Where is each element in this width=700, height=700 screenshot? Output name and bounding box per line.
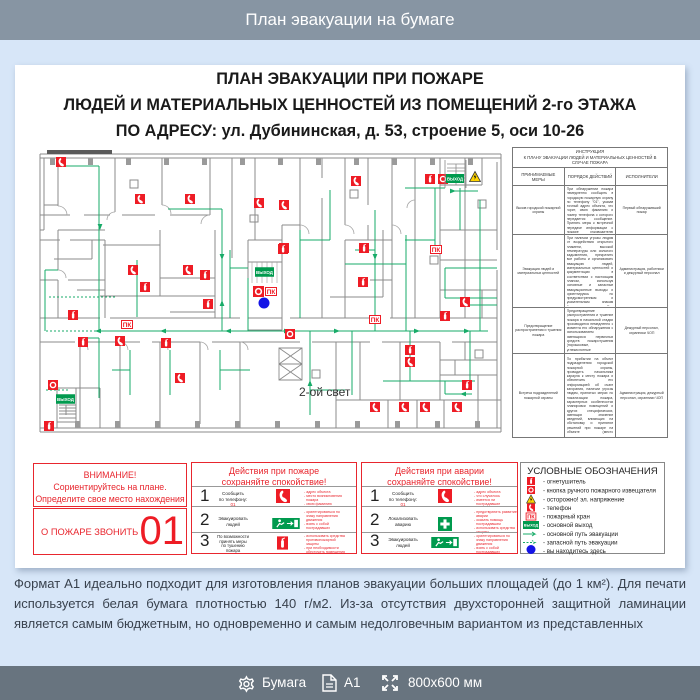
svg-text:- основной путь эвакуации: - основной путь эвакуации: [543, 531, 618, 538]
svg-text:- вы находитесь здесь: - вы находитесь здесь: [543, 548, 606, 555]
svg-text:- осторожно! эл. напряжение: - осторожно! эл. напряжение: [543, 497, 625, 504]
svg-text:- кнопка ручного пожарного изв: - кнопка ручного пожарного извещателя: [543, 488, 656, 495]
svg-text:- пожарный кран: - пожарный кран: [543, 514, 590, 521]
svg-text:- запасной путь эвакуации: - запасной путь эвакуации: [543, 540, 618, 547]
svg-text:- огнетушитель: - огнетушитель: [543, 479, 586, 486]
svg-text:2-ой свет: 2-ой свет: [299, 385, 351, 399]
svg-text:- основной выход: - основной выход: [543, 522, 593, 529]
svg-text:- телефон: - телефон: [543, 505, 571, 512]
